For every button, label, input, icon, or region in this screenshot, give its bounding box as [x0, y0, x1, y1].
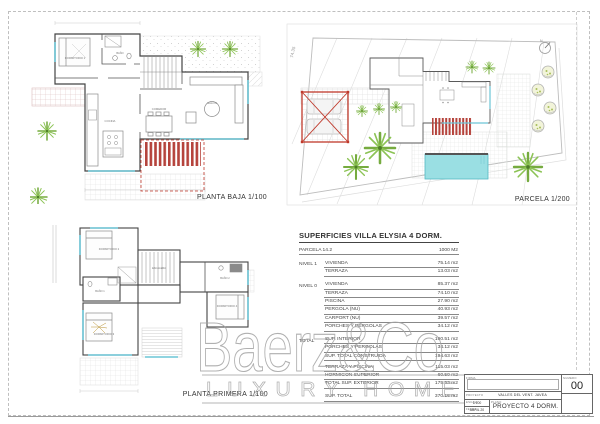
palm-icon — [38, 122, 56, 140]
table-row: HORMIGON SUPERIOR60.50 m2 — [299, 372, 459, 380]
terrace-hatch — [80, 358, 138, 385]
dimension-lines — [80, 389, 138, 393]
carport — [301, 91, 349, 143]
palm-icon — [223, 42, 238, 57]
signature-box — [467, 379, 559, 390]
plan-name-cell: PLANO PROYECTO 4 DORM. — [490, 400, 561, 414]
table-row: PORCHES Y PERGOLAS34.12 m2 — [299, 344, 459, 352]
plano-value: PROYECTO 4 DORM. — [493, 403, 558, 410]
boundary-dimension: 74.35 — [289, 46, 296, 59]
terrace-corner-hatch — [248, 72, 262, 86]
terrace-bottom-hatch — [85, 174, 205, 200]
palm-icon — [374, 104, 385, 115]
fecha-label: FECHA — [466, 407, 476, 411]
parcela-plan: 74.35 — [282, 14, 582, 214]
palm-icon — [191, 42, 206, 57]
table-row: NIVEL 1 VIVIENDA75.14 m2 — [299, 260, 459, 268]
north-label: N — [540, 39, 543, 43]
empty-cell — [562, 394, 592, 413]
table-row: SUP. TOTAL CONSTRUIDA194.63 m2 — [299, 353, 459, 361]
table-row: NIVEL 0 VIVIENDA85.37 m2 — [299, 281, 459, 289]
numero-label: NUMERO — [563, 376, 577, 380]
room-label-escalera: ESCALERA — [152, 266, 166, 270]
table-row: PERGOLA (NU)40.93 m2 — [299, 306, 459, 314]
bed — [59, 38, 90, 66]
palm-icon — [357, 106, 368, 117]
palm-icon — [391, 102, 402, 113]
planta-primera-plan: DORMITORIO 2 ESCALERA BAÑO 1 DORMITORIO … — [20, 215, 300, 410]
table-row: PORCHES Y PERGOLAS34.12 m2 — [299, 323, 459, 331]
title-block: FIRMA PROYECTO VALLES DEL VENT. JAVEA ES… — [464, 374, 593, 414]
drawing-sheet: DORMITORIO 1 BAÑO COCINA COMEDOR SALON P… — [0, 0, 600, 424]
table-row: CARPORT (NU)39.57 m2 — [299, 315, 459, 323]
proyecto-value: VALLES DEL VENT. JAVEA — [484, 393, 561, 397]
project-cell: PROYECTO VALLES DEL VENT. JAVEA — [465, 392, 561, 400]
table-row: TOTAL SUP. EXTERIOR175.53 m2 — [299, 380, 459, 388]
north-compass-icon: N — [540, 39, 551, 54]
planta-baja-title: PLANTA BAJA 1/100 — [197, 194, 267, 201]
numero-value: 00 — [571, 380, 583, 392]
signature-cell: FIRMA — [465, 375, 561, 392]
date-cell: FECHA ABRIL 20 — [465, 407, 489, 413]
palm-icon — [365, 133, 395, 163]
room-label-salon: SALON — [207, 101, 216, 105]
planta-baja-plan: DORMITORIO 1 BAÑO COCINA COMEDOR SALON P… — [30, 14, 270, 204]
house-pergola-stripes — [432, 118, 472, 135]
planta-primera-title: PLANTA PRIMERA 1/100 — [183, 391, 268, 398]
parcela-title: PARCELA 1/200 — [515, 196, 570, 203]
dining-table — [146, 112, 172, 136]
areas-table-title: SUPERFICIES VILLA ELYSIA 4 DORM. — [299, 231, 459, 243]
palm-icon — [344, 155, 368, 179]
terrace-lines — [142, 328, 182, 357]
room-label-dormitorio1: DORMITORIO 1 — [65, 56, 86, 60]
escala-label: ESCALA — [466, 400, 478, 404]
sheet-number-cell: NUMERO 00 — [562, 375, 592, 394]
plano-label: PLANO — [491, 400, 501, 404]
terrace-hatch-east — [497, 74, 530, 147]
scale-cell: ESCALA 1/100 — [465, 400, 489, 407]
table-row: TERRAZA13.03 m2 — [299, 268, 459, 276]
tree-icon — [532, 84, 544, 96]
table-row: TERRAZA74.10 m2 — [299, 290, 459, 298]
palm-icon — [30, 188, 47, 204]
table-row: PISCINA27.90 m2 — [299, 298, 459, 306]
tree-icon — [544, 102, 556, 114]
sheet-bottom-rule — [8, 416, 594, 417]
room-label-cocina: COCINA — [105, 119, 116, 123]
room-label-dormitorio3: DORMITORIO 3 — [94, 332, 115, 336]
terrace-hatch-small — [248, 270, 254, 292]
tree-icon — [532, 120, 544, 132]
palm-icon — [514, 153, 542, 181]
table-row: SUP. TOTAL370.16 m2 — [299, 393, 459, 401]
room-label-dormitorio2: DORMITORIO 2 — [99, 247, 120, 251]
retaining-wall — [53, 225, 56, 283]
room-label-comedor: COMEDOR — [152, 107, 167, 111]
palm-icon — [466, 61, 478, 73]
table-row: TERRAZA Y PISCINA115.03 m2 — [299, 364, 459, 372]
palm-icon — [483, 62, 495, 74]
pool — [425, 154, 488, 179]
table-row: PARCELA 14.2 1000 M2 — [299, 246, 459, 255]
table-row: TOTAL SUP. INTERIOR160.51 m2 — [299, 336, 459, 344]
room-label-dormitorio4: DORMITORIO 4 — [217, 304, 238, 308]
proyecto-label: PROYECTO — [465, 393, 484, 397]
areas-table: SUPERFICIES VILLA ELYSIA 4 DORM. PARCELA… — [299, 231, 459, 402]
tree-icon — [542, 66, 554, 78]
